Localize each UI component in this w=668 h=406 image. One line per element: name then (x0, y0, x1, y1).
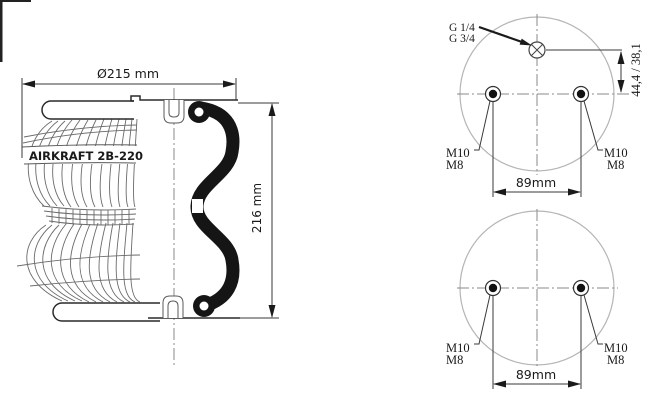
right-stud-leader-line (584, 101, 603, 150)
port-leader-arrowhead (520, 39, 532, 46)
scan-mark-top (0, 0, 31, 2)
stud-hole-left-center (489, 90, 497, 98)
technical-drawing-canvas: AIRKRAFT 2B-220 (0, 0, 668, 406)
bottom-plan-view: M10 M8 M10 M8 89mm (446, 209, 628, 389)
right-stud-thread-label-2: M8 (607, 353, 624, 367)
left-stud-leader-line (474, 295, 490, 344)
diameter-dim-label: Ø215 mm (97, 66, 159, 81)
spacing-dim-label: 89mm (516, 367, 556, 382)
port-thread-callout: G 1/4 G 3/4 (449, 22, 532, 46)
part-name-label: AIRKRAFT 2B-220 (29, 149, 143, 163)
height-dim-label: 216 mm (250, 183, 264, 233)
top-plan-view: G 1/4 G 3/4 44,4 / 38,1 M10 M8 M10 M8 (446, 14, 643, 197)
top-plate-capsule (42, 101, 134, 119)
bellows-wireframe-lower (17, 223, 140, 302)
bottom-stud (163, 296, 183, 318)
scan-mark-left (0, 0, 3, 62)
upper-contour-line (23, 125, 137, 143)
port-leader-line (479, 27, 522, 42)
bottom-bead-hole (200, 302, 209, 311)
air-port (529, 42, 545, 58)
port-offset-dimension: 44,4 / 38,1 (546, 43, 643, 96)
top-stud (164, 100, 184, 123)
stud-hole-right-center (577, 90, 585, 98)
bellows-waist-rings (42, 206, 136, 225)
right-stud-leader-line (584, 295, 603, 344)
bottom-plate-capsule (53, 303, 160, 321)
stud-hole-right-center (577, 284, 585, 292)
top-bead-hole (195, 108, 204, 117)
port-thread-label-2: G 3/4 (449, 33, 475, 45)
right-stud-thread-label-2: M8 (607, 158, 624, 172)
part-name-band: AIRKRAFT 2B-220 (22, 145, 143, 164)
air-spring-technical-drawing: AIRKRAFT 2B-220 (0, 0, 668, 406)
stud-hole-left-center (489, 284, 497, 292)
left-stud-thread-label-2: M8 (446, 158, 463, 172)
bellows-section (188, 101, 233, 317)
left-stud-thread-label-2: M8 (446, 353, 463, 367)
height-dimension: 216 mm (238, 103, 279, 318)
scan-edge-marks (0, 0, 31, 62)
spacing-dim-label: 89mm (516, 175, 556, 190)
side-view: AIRKRAFT 2B-220 (17, 66, 279, 366)
left-stud-leader-line (474, 101, 490, 150)
girdle-ring (192, 199, 203, 213)
port-offset-dim-label: 44,4 / 38,1 (629, 43, 643, 96)
